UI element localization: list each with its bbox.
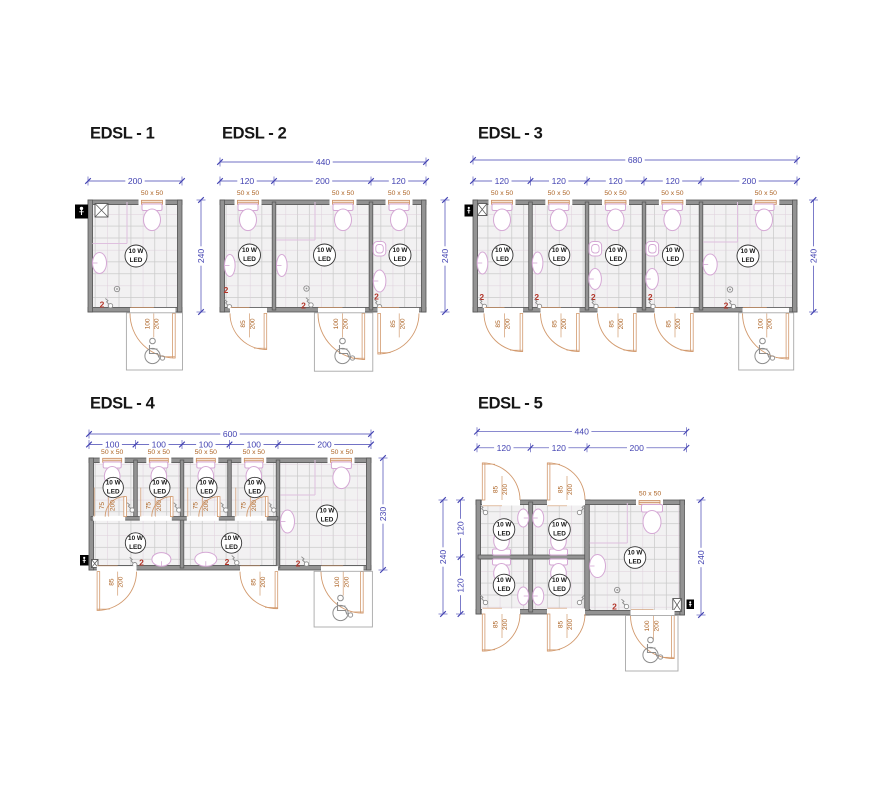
svg-text:LED: LED [394,256,407,263]
svg-text:10 W: 10 W [497,522,513,529]
svg-text:2: 2 [648,292,653,302]
svg-text:10 W: 10 W [317,247,333,254]
svg-text:EDSL - 5: EDSL - 5 [478,395,543,413]
svg-text:LED: LED [610,256,623,263]
svg-text:200: 200 [618,318,625,329]
svg-text:EDSL - 4: EDSL - 4 [90,395,156,413]
svg-text:LED: LED [629,558,642,565]
svg-text:440: 440 [316,157,331,167]
svg-text:75: 75 [193,502,200,510]
svg-text:100: 100 [333,318,340,329]
svg-text:LED: LED [553,586,566,593]
svg-text:50 x 50: 50 x 50 [332,190,355,197]
svg-text:50 x 50: 50 x 50 [548,190,571,197]
svg-text:85: 85 [108,578,115,586]
svg-text:LED: LED [667,256,680,263]
svg-text:LED: LED [243,256,256,263]
svg-text:200: 200 [742,176,757,186]
svg-text:120: 120 [608,176,623,186]
svg-text:2: 2 [301,301,306,311]
svg-text:200: 200 [343,576,350,587]
svg-text:200: 200 [109,500,116,511]
svg-text:85: 85 [558,486,565,494]
svg-text:LED: LED [248,488,261,495]
svg-text:85: 85 [552,320,559,328]
svg-text:75: 75 [99,502,106,510]
svg-text:240: 240 [196,249,206,264]
svg-text:120: 120 [497,443,512,453]
svg-text:10 W: 10 W [199,480,215,487]
svg-text:10 W: 10 W [741,248,757,255]
svg-text:75: 75 [146,502,153,510]
svg-text:600: 600 [223,429,238,439]
svg-text:200: 200 [317,440,332,450]
svg-text:2: 2 [591,292,596,302]
svg-text:100: 100 [644,620,651,631]
svg-text:10 W: 10 W [665,247,681,254]
svg-text:240: 240 [809,249,819,264]
svg-text:10 W: 10 W [320,508,336,515]
svg-text:LED: LED [200,488,213,495]
svg-text:50 x 50: 50 x 50 [195,449,218,456]
svg-text:85: 85 [495,320,502,328]
svg-text:200: 200 [260,576,267,587]
svg-text:200: 200 [505,318,512,329]
svg-text:85: 85 [609,320,616,328]
svg-text:240: 240 [440,249,450,264]
svg-text:2: 2 [224,285,229,295]
svg-text:10 W: 10 W [495,247,511,254]
svg-text:200: 200 [502,619,509,630]
svg-text:85: 85 [493,486,500,494]
svg-text:10 W: 10 W [497,577,513,584]
svg-text:680: 680 [628,155,643,165]
svg-text:75: 75 [241,502,248,510]
svg-text:85: 85 [251,578,258,586]
svg-text:85: 85 [240,320,247,328]
svg-text:120: 120 [495,176,510,186]
svg-text:LED: LED [321,516,334,523]
svg-text:EDSL - 2: EDSL - 2 [222,125,287,143]
svg-text:240: 240 [438,550,448,565]
svg-text:50 x 50: 50 x 50 [388,190,411,197]
svg-text:EDSL - 3: EDSL - 3 [478,125,543,143]
svg-text:200: 200 [654,620,661,631]
svg-text:2: 2 [612,602,617,612]
svg-text:200: 200 [502,484,509,495]
svg-text:10 W: 10 W [393,247,409,254]
svg-text:2: 2 [139,558,144,568]
svg-text:LED: LED [498,586,511,593]
svg-text:10 W: 10 W [247,480,263,487]
svg-text:200: 200 [343,318,350,329]
svg-text:2: 2 [534,292,539,302]
svg-text:200: 200 [128,176,143,186]
svg-text:50 x 50: 50 x 50 [237,190,260,197]
svg-text:85: 85 [558,621,565,629]
svg-text:50 x 50: 50 x 50 [331,449,354,456]
svg-text:200: 200 [767,318,774,329]
svg-text:120: 120 [391,176,406,186]
svg-text:10 W: 10 W [106,480,122,487]
svg-text:50 x 50: 50 x 50 [639,491,662,498]
svg-text:85: 85 [493,621,500,629]
svg-text:200: 200 [567,484,574,495]
svg-text:50 x 50: 50 x 50 [755,190,778,197]
svg-text:50 x 50: 50 x 50 [661,190,684,197]
svg-text:LED: LED [225,544,238,551]
svg-text:120: 120 [552,176,567,186]
svg-text:10 W: 10 W [242,247,258,254]
svg-text:200: 200 [567,619,574,630]
svg-text:10 W: 10 W [552,247,568,254]
svg-text:LED: LED [318,256,331,263]
svg-text:50 x 50: 50 x 50 [604,190,627,197]
svg-text:200: 200 [630,443,645,453]
svg-text:LED: LED [498,530,511,537]
svg-text:200: 200 [561,318,568,329]
svg-text:230: 230 [378,507,388,522]
svg-text:440: 440 [575,427,590,437]
svg-text:10 W: 10 W [552,577,568,584]
svg-text:120: 120 [240,176,255,186]
svg-text:200: 200 [118,576,125,587]
svg-text:10 W: 10 W [152,480,168,487]
svg-text:85: 85 [666,320,673,328]
svg-text:85: 85 [390,320,397,328]
svg-text:LED: LED [553,256,566,263]
svg-text:200: 200 [675,318,682,329]
svg-text:2: 2 [724,301,729,311]
svg-text:LED: LED [129,544,142,551]
svg-text:2: 2 [100,300,105,310]
svg-text:EDSL - 1: EDSL - 1 [90,125,155,143]
svg-text:200: 200 [156,500,163,511]
svg-text:100: 100 [144,318,151,329]
svg-text:LED: LED [553,530,566,537]
svg-text:50 x 50: 50 x 50 [148,449,171,456]
svg-text:2: 2 [296,559,301,569]
svg-text:10 W: 10 W [552,522,568,529]
svg-text:200: 200 [250,318,257,329]
svg-text:2: 2 [479,292,484,302]
svg-text:LED: LED [153,488,166,495]
svg-text:50 x 50: 50 x 50 [101,449,124,456]
svg-text:120: 120 [552,443,567,453]
svg-text:240: 240 [696,550,706,565]
svg-text:100: 100 [334,576,341,587]
svg-text:120: 120 [456,521,466,536]
svg-text:10 W: 10 W [129,248,145,255]
svg-text:2: 2 [225,557,230,567]
svg-text:10 W: 10 W [224,535,240,542]
svg-text:200: 200 [315,176,330,186]
svg-text:LED: LED [496,256,509,263]
svg-text:200: 200 [154,318,161,329]
svg-text:50 x 50: 50 x 50 [141,190,164,197]
svg-text:200: 200 [203,500,210,511]
svg-text:10 W: 10 W [128,535,144,542]
svg-text:50 x 50: 50 x 50 [491,190,514,197]
svg-text:200: 200 [251,500,258,511]
svg-text:100: 100 [758,318,765,329]
svg-text:10 W: 10 W [628,550,644,557]
svg-text:LED: LED [130,257,143,264]
svg-text:LED: LED [742,257,755,264]
svg-text:10 W: 10 W [609,247,625,254]
svg-text:200: 200 [399,318,406,329]
svg-text:50 x 50: 50 x 50 [243,449,266,456]
svg-text:LED: LED [107,488,120,495]
svg-text:120: 120 [665,176,680,186]
svg-text:120: 120 [456,578,466,593]
